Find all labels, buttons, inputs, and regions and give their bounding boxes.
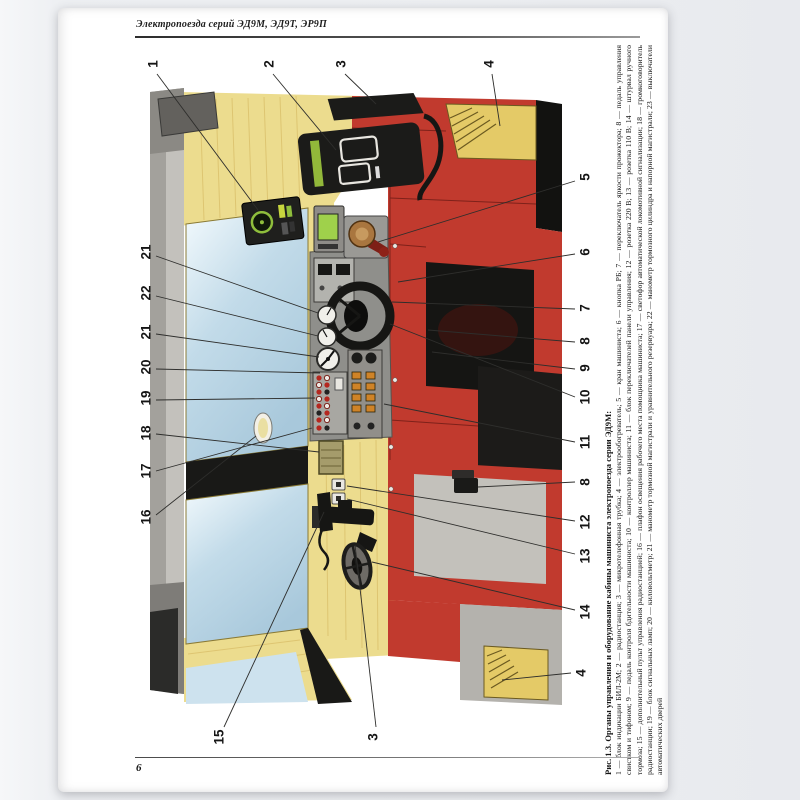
sun-visor-slab (158, 92, 218, 136)
cab-ceiling-band (150, 88, 184, 694)
signal-lamp-block (313, 372, 347, 434)
callout-number: 8 (578, 478, 593, 486)
figure-caption-body: 1 — блок индикации БИЛ-2М; 2 — радиостан… (614, 45, 665, 775)
callout-number: 17 (139, 463, 154, 478)
callout-number: 15 (212, 729, 227, 745)
callout-number: 10 (578, 389, 593, 404)
scanned-book-page: { "page": { "running_header": "Электропо… (0, 0, 800, 800)
callout-number: 12 (578, 514, 593, 529)
callout-number: 1 (146, 60, 161, 68)
figure-caption-title: Рис. 1.3. Органы управления и оборудован… (603, 45, 614, 775)
callout-number: 2 (262, 60, 277, 68)
switch-panel (348, 350, 382, 438)
callout-number: 22 (139, 285, 154, 300)
callout-number: 18 (139, 425, 154, 441)
callout-number: 16 (139, 509, 154, 525)
brake-valve (344, 216, 389, 258)
pressure-gauges (317, 306, 339, 370)
callout-number: 4 (482, 60, 497, 68)
callout-number: 6 (578, 248, 593, 256)
callout-number: 19 (139, 390, 154, 405)
electric-heater-bottom (484, 646, 548, 700)
electric-heater-top (446, 104, 536, 160)
callout-number: 7 (578, 304, 593, 312)
callout-number: 14 (578, 604, 593, 620)
pedal (454, 478, 478, 493)
control-desk (310, 246, 392, 441)
speed-display-device (314, 206, 344, 252)
speaker-grille (319, 441, 343, 474)
callout-number: 13 (578, 548, 593, 564)
bil-2m-indicator (242, 197, 305, 246)
callout-number: 20 (139, 359, 154, 374)
callout-number: 3 (334, 60, 349, 68)
callout-number: 21 (139, 324, 154, 340)
callout-number: 3 (366, 733, 381, 741)
ceiling-lamp (254, 413, 272, 443)
callout-number: 4 (574, 669, 589, 677)
footer-rule (135, 757, 640, 758)
callout-number: 11 (578, 434, 593, 449)
page-number: 6 (136, 762, 142, 774)
callout-number: 9 (578, 364, 593, 372)
figure-caption: Рис. 1.3. Органы управления и оборудован… (603, 45, 667, 775)
callout-number: 21 (139, 244, 154, 260)
cab-illustration: 1234212221201918171656789101181213141534 (0, 0, 800, 800)
callout-number: 5 (578, 173, 593, 181)
callout-number: 8 (578, 337, 593, 345)
